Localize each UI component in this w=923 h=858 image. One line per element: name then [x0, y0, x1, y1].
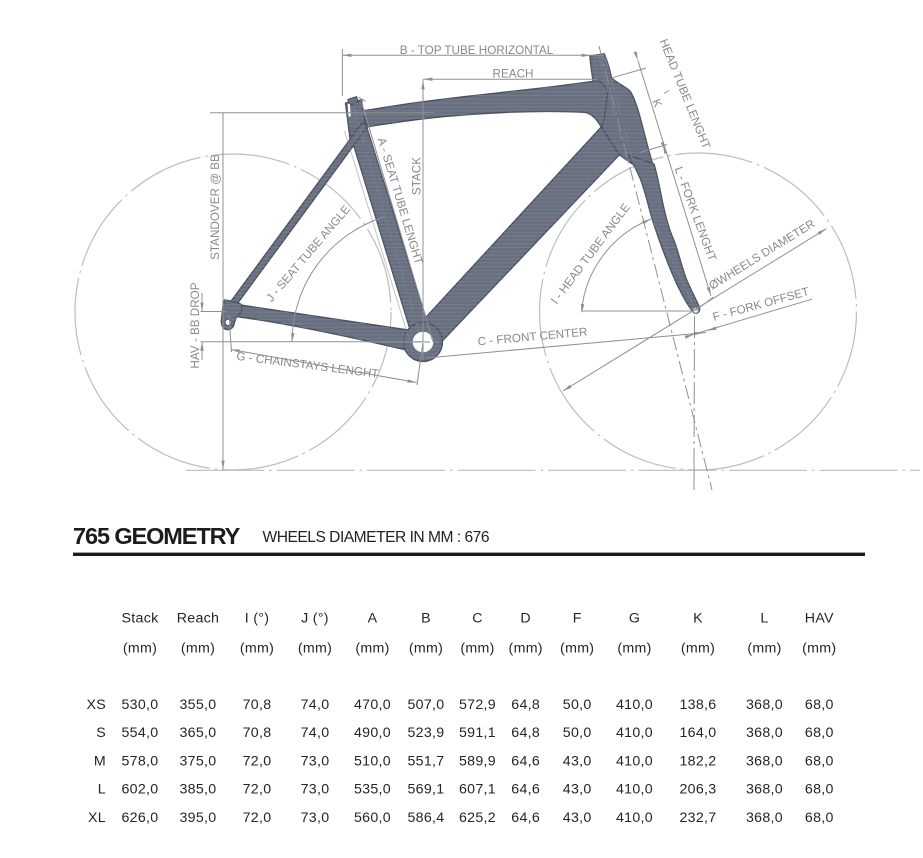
svg-text:(mm): (mm) [681, 641, 715, 657]
svg-text:STACK: STACK [410, 157, 423, 195]
svg-text:410,0: 410,0 [616, 782, 653, 798]
svg-text:70,8: 70,8 [243, 697, 272, 713]
svg-text:206,3: 206,3 [679, 782, 716, 798]
svg-text:355,0: 355,0 [179, 697, 216, 713]
svg-text:HAV - BB DROP: HAV - BB DROP [189, 282, 202, 368]
svg-text:74,0: 74,0 [301, 725, 330, 741]
svg-text:554,0: 554,0 [121, 725, 158, 741]
svg-text:385,0: 385,0 [179, 782, 216, 798]
svg-text:F: F [573, 611, 582, 627]
svg-text:138,6: 138,6 [679, 697, 716, 713]
svg-text:232,7: 232,7 [679, 810, 716, 826]
svg-text:I (°): I (°) [245, 611, 270, 627]
svg-text:64,8: 64,8 [511, 725, 540, 741]
svg-text:72,0: 72,0 [243, 782, 272, 798]
svg-text:43,0: 43,0 [563, 753, 592, 769]
svg-text:J (°): J (°) [301, 611, 329, 627]
svg-text:(mm): (mm) [617, 641, 651, 657]
svg-text:507,0: 507,0 [407, 697, 444, 713]
svg-text:C: C [472, 611, 483, 627]
svg-text:L: L [98, 782, 106, 798]
svg-text:365,0: 365,0 [179, 725, 216, 741]
svg-text:(mm): (mm) [509, 641, 543, 657]
svg-text:523,9: 523,9 [407, 725, 444, 741]
svg-text:(mm): (mm) [181, 641, 215, 657]
svg-text:535,0: 535,0 [354, 782, 391, 798]
svg-text:602,0: 602,0 [121, 782, 158, 798]
svg-text:164,0: 164,0 [679, 725, 716, 741]
svg-text:368,0: 368,0 [746, 810, 783, 826]
svg-text:(mm): (mm) [240, 641, 274, 657]
svg-text:73,0: 73,0 [301, 810, 330, 826]
svg-text:586,4: 586,4 [407, 810, 444, 826]
svg-text:368,0: 368,0 [746, 753, 783, 769]
svg-text:510,0: 510,0 [354, 753, 391, 769]
svg-text:470,0: 470,0 [354, 697, 391, 713]
svg-text:HAV: HAV [805, 611, 834, 627]
svg-text:68,0: 68,0 [805, 725, 834, 741]
svg-text:68,0: 68,0 [805, 782, 834, 798]
svg-text:578,0: 578,0 [121, 753, 158, 769]
svg-text:(mm): (mm) [409, 641, 443, 657]
svg-text:74,0: 74,0 [301, 697, 330, 713]
svg-text:368,0: 368,0 [746, 697, 783, 713]
svg-text:368,0: 368,0 [746, 725, 783, 741]
svg-text:K: K [693, 611, 703, 627]
svg-text:607,1: 607,1 [459, 782, 496, 798]
svg-text:B - TOP TUBE HORIZONTAL: B - TOP TUBE HORIZONTAL [400, 44, 554, 57]
svg-text:70,8: 70,8 [243, 725, 272, 741]
svg-text:WHEELS DIAMETER IN MM : 676: WHEELS DIAMETER IN MM : 676 [263, 529, 490, 546]
svg-text:64,6: 64,6 [511, 810, 540, 826]
svg-text:410,0: 410,0 [616, 725, 653, 741]
svg-text:64,6: 64,6 [511, 753, 540, 769]
svg-text:410,0: 410,0 [616, 753, 653, 769]
svg-text:551,7: 551,7 [407, 753, 444, 769]
svg-text:(mm): (mm) [123, 641, 157, 657]
svg-text:G: G [629, 611, 640, 627]
svg-text:625,2: 625,2 [459, 810, 496, 826]
svg-text:(mm): (mm) [747, 641, 781, 657]
svg-text:XL: XL [88, 810, 106, 826]
svg-text:64,6: 64,6 [511, 782, 540, 798]
svg-text:395,0: 395,0 [179, 810, 216, 826]
svg-text:Stack: Stack [122, 611, 160, 627]
svg-text:72,0: 72,0 [243, 810, 272, 826]
svg-text:68,0: 68,0 [805, 697, 834, 713]
svg-text:626,0: 626,0 [121, 810, 158, 826]
svg-text:73,0: 73,0 [301, 753, 330, 769]
svg-text:(mm): (mm) [560, 641, 594, 657]
svg-text:(mm): (mm) [460, 641, 494, 657]
svg-text:182,2: 182,2 [679, 753, 716, 769]
svg-text:(mm): (mm) [355, 641, 389, 657]
svg-text:73,0: 73,0 [301, 782, 330, 798]
svg-text:A: A [368, 611, 378, 627]
svg-text:560,0: 560,0 [354, 810, 391, 826]
svg-text:591,1: 591,1 [459, 725, 496, 741]
svg-text:765 GEOMETRY: 765 GEOMETRY [73, 523, 241, 549]
svg-text:490,0: 490,0 [354, 725, 391, 741]
svg-text:572,9: 572,9 [459, 697, 496, 713]
svg-text:D: D [520, 611, 531, 627]
svg-text:368,0: 368,0 [746, 782, 783, 798]
svg-text:72,0: 72,0 [243, 753, 272, 769]
svg-text:S: S [96, 725, 106, 741]
svg-text:(mm): (mm) [298, 641, 332, 657]
svg-text:REACH: REACH [493, 67, 534, 80]
svg-text:375,0: 375,0 [179, 753, 216, 769]
svg-text:64,8: 64,8 [511, 697, 540, 713]
svg-text:50,0: 50,0 [563, 725, 592, 741]
svg-text:530,0: 530,0 [121, 697, 158, 713]
svg-text:43,0: 43,0 [563, 782, 592, 798]
svg-text:410,0: 410,0 [616, 697, 653, 713]
svg-text:43,0: 43,0 [563, 810, 592, 826]
svg-text:XS: XS [86, 697, 106, 713]
svg-text:68,0: 68,0 [805, 753, 834, 769]
svg-text:M: M [94, 753, 106, 769]
svg-text:L: L [760, 611, 768, 627]
svg-text:Reach: Reach [177, 611, 220, 627]
svg-text:410,0: 410,0 [616, 810, 653, 826]
svg-text:589,9: 589,9 [459, 753, 496, 769]
svg-text:(mm): (mm) [802, 641, 836, 657]
svg-text:B: B [421, 611, 431, 627]
svg-text:STANDOVER @ BB: STANDOVER @ BB [209, 154, 222, 260]
svg-text:569,1: 569,1 [407, 782, 444, 798]
svg-text:50,0: 50,0 [563, 697, 592, 713]
svg-text:68,0: 68,0 [805, 810, 834, 826]
